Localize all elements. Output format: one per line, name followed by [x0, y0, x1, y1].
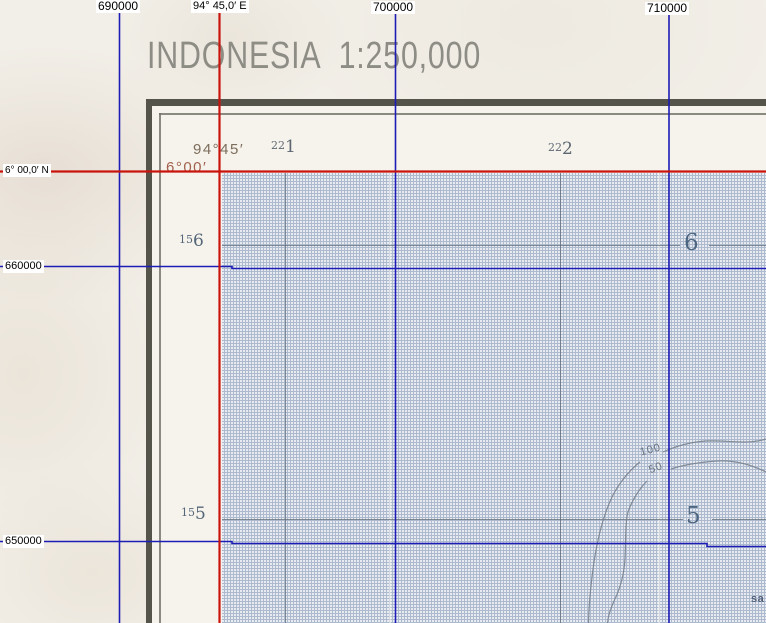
meridian-chip-94-45E: 94° 45,0′ E	[191, 0, 249, 13]
northing-line-650000	[0, 542, 766, 547]
map-viewer-viewport: INDONESIA 1:250,000 94°45′ 6°00′ 221 222…	[0, 0, 766, 623]
northing-line-660000	[0, 267, 766, 269]
easting-chip-690000: 690000	[96, 0, 140, 13]
northing-chip-650000: 650000	[3, 535, 44, 548]
parallel-chip-6-00N: 6° 00,0′ N	[3, 164, 51, 177]
easting-chip-700000: 700000	[371, 1, 415, 14]
viewer-overlay-lines	[0, 0, 766, 623]
northing-chip-660000: 660000	[3, 260, 44, 273]
easting-chip-710000: 710000	[645, 2, 689, 15]
